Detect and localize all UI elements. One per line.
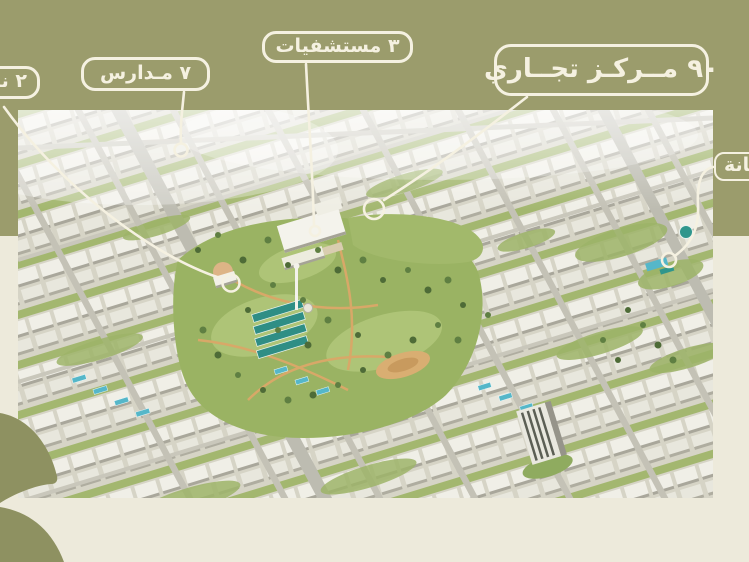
logo-letter-shape <box>0 408 80 562</box>
callout-hospitals-label: ٣ مستشفيات <box>275 37 399 56</box>
callout-commercial-label: ٩٠ مــركـز تجــاري <box>484 56 719 82</box>
callout-clubs-label: ٢ نادي <box>0 72 27 91</box>
callout-clubs: ٢ نادي <box>0 66 40 99</box>
callout-commercial: ٩٠ مــركـز تجــاري <box>494 44 709 96</box>
logo-petal-top <box>0 413 57 503</box>
callout-nursery-label: حضانة <box>724 156 749 175</box>
logo-petal-bottom <box>0 507 64 562</box>
callout-schools-label: ٧ مـدارس <box>100 64 191 83</box>
city-render <box>18 110 713 498</box>
callout-nursery: حضانة <box>714 152 749 181</box>
callout-schools: ٧ مـدارس <box>81 57 210 91</box>
callout-hospitals: ٣ مستشفيات <box>262 31 413 63</box>
masterplan-slide: ٢ نادي ٧ مـدارس ٣ مستشفيات ٩٠ مــركـز تج… <box>0 0 749 562</box>
aerial-masterplan-image <box>18 110 713 498</box>
